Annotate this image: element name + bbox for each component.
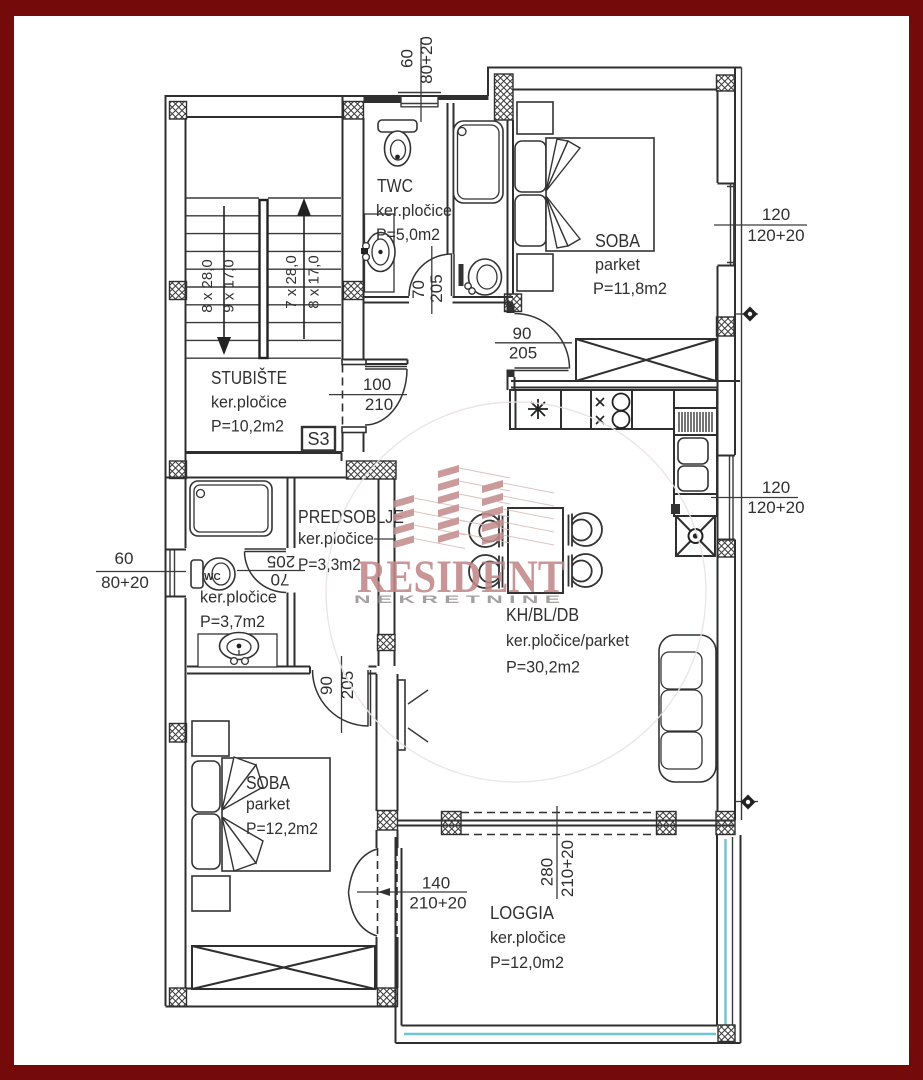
svg-text:205: 205 xyxy=(509,344,537,363)
svg-text:205: 205 xyxy=(338,671,357,699)
svg-text:70: 70 xyxy=(409,280,428,299)
svg-text:90: 90 xyxy=(513,324,532,343)
svg-text:8 x 28,0: 8 x 28,0 xyxy=(199,259,216,312)
svg-text:120: 120 xyxy=(762,205,790,224)
svg-text:9 x 17,0: 9 x 17,0 xyxy=(221,259,238,312)
svg-text:ker.pločice: ker.pločice xyxy=(200,588,277,607)
svg-text:8 x 17,0: 8 x 17,0 xyxy=(306,255,323,308)
svg-text:70: 70 xyxy=(271,570,290,589)
svg-text:P=11,8m2: P=11,8m2 xyxy=(593,279,667,298)
svg-text:100: 100 xyxy=(363,375,391,394)
svg-text:SOBA: SOBA xyxy=(246,773,290,793)
svg-text:ker.pločice/parket: ker.pločice/parket xyxy=(506,631,629,650)
svg-text:LOGGIA: LOGGIA xyxy=(490,903,554,923)
svg-text:ker.pločice: ker.pločice xyxy=(490,928,566,947)
svg-text:90: 90 xyxy=(317,676,336,695)
svg-text:80+20: 80+20 xyxy=(417,36,436,84)
svg-text:PREDSOBLJE: PREDSOBLJE xyxy=(298,507,404,527)
svg-text:P=30,2m2: P=30,2m2 xyxy=(506,658,580,677)
svg-text:120: 120 xyxy=(762,478,790,497)
svg-text:P=12,0m2: P=12,0m2 xyxy=(490,953,564,972)
svg-text:P=5,0m2: P=5,0m2 xyxy=(376,225,440,244)
svg-text:P=12,2m2: P=12,2m2 xyxy=(246,819,318,838)
svg-text:P=3,7m2: P=3,7m2 xyxy=(200,612,265,631)
svg-text:7 x 28,0: 7 x 28,0 xyxy=(283,255,300,308)
svg-text:140: 140 xyxy=(422,874,450,893)
svg-text:ker.pločice: ker.pločice xyxy=(211,393,287,412)
svg-text:205: 205 xyxy=(267,552,295,571)
svg-text:60: 60 xyxy=(398,49,417,68)
svg-text:210+20: 210+20 xyxy=(558,840,577,897)
svg-text:KH/BL/DB: KH/BL/DB xyxy=(506,605,579,625)
svg-text:120+20: 120+20 xyxy=(747,226,804,245)
svg-text:210+20: 210+20 xyxy=(409,894,466,913)
svg-text:280: 280 xyxy=(538,858,557,886)
svg-text:parket: parket xyxy=(595,255,640,274)
svg-text:205: 205 xyxy=(427,274,446,302)
svg-text:TWC: TWC xyxy=(377,176,413,196)
svg-text:N E K R E T N I N E: N E K R E T N I N E xyxy=(354,594,560,606)
svg-text:210: 210 xyxy=(365,395,393,414)
svg-text:60: 60 xyxy=(115,549,134,568)
svg-text:SOBA: SOBA xyxy=(595,231,640,251)
svg-text:S3: S3 xyxy=(307,429,329,449)
svg-text:WC: WC xyxy=(204,572,221,583)
svg-text:ker.pločice: ker.pločice xyxy=(376,201,452,220)
svg-text:STUBIŠTE: STUBIŠTE xyxy=(211,367,287,388)
svg-text:120+20: 120+20 xyxy=(747,498,804,517)
svg-text:parket: parket xyxy=(246,795,290,814)
svg-text:P=10,2m2: P=10,2m2 xyxy=(211,417,284,436)
svg-text:80+20: 80+20 xyxy=(101,573,149,592)
